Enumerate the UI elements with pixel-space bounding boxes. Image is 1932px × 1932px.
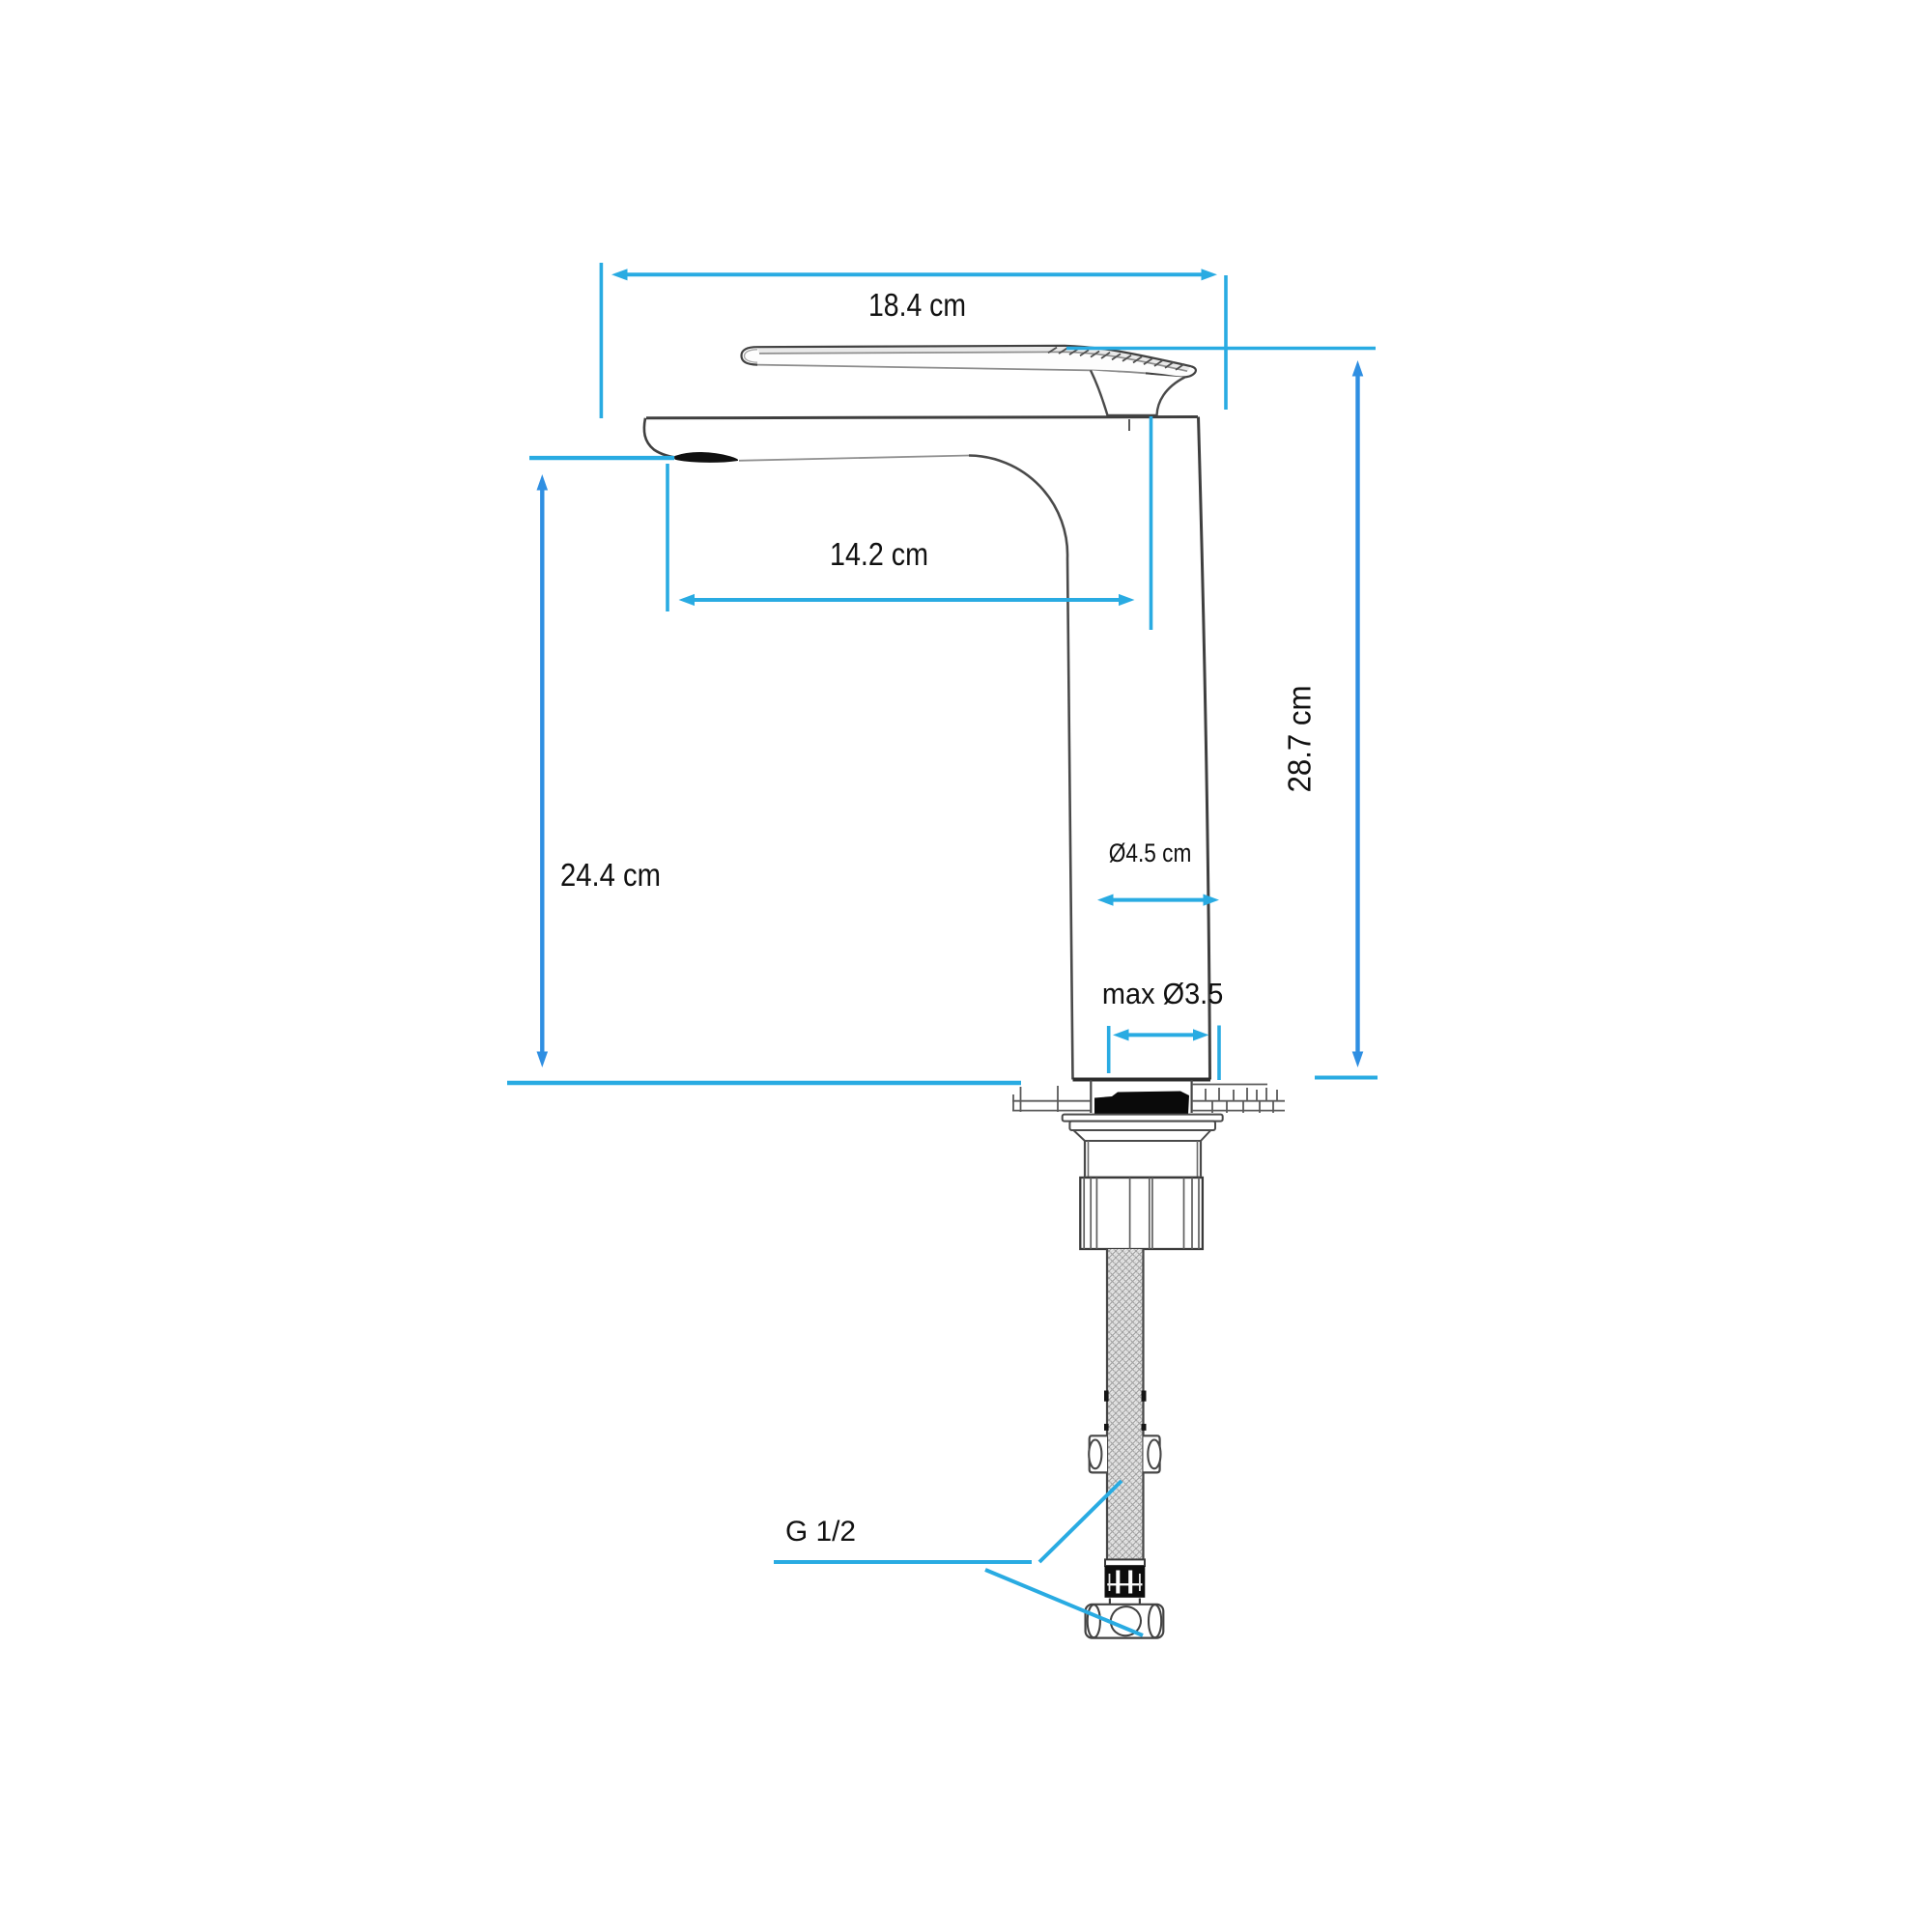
svg-text:14.2 cm: 14.2 cm: [830, 536, 928, 572]
svg-text:18.4 cm: 18.4 cm: [868, 287, 966, 323]
svg-text:G 1/2: G 1/2: [785, 1516, 856, 1548]
svg-text:Ø4.5 cm: Ø4.5 cm: [1109, 838, 1192, 867]
svg-text:max Ø3.5: max Ø3.5: [1102, 977, 1223, 1010]
svg-text:24.4 cm: 24.4 cm: [560, 857, 661, 893]
svg-text:28.7 cm: 28.7 cm: [1282, 686, 1318, 793]
